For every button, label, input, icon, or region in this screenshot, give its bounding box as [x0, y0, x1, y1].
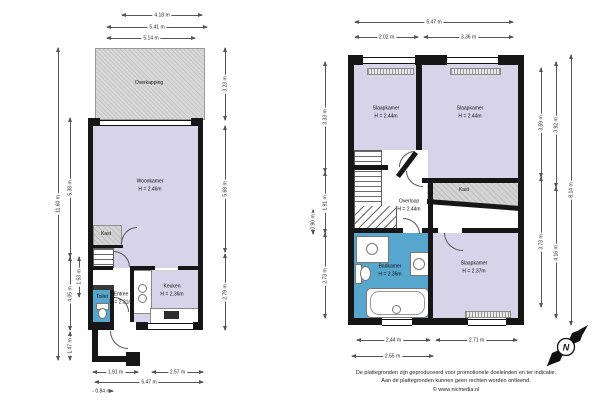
wall — [416, 62, 422, 150]
wall — [428, 233, 433, 318]
disclaimer-line-2: Aan de plattegronden kunnen geen rechten… — [320, 377, 592, 385]
dimension: 3.36 m — [424, 37, 513, 38]
dimension: 2.55 m — [352, 356, 433, 357]
room-label-badkamer: Badkamer H = 2.36m — [378, 263, 401, 279]
room-label-slaapkamer1: Slaapkamer H = 2.44m — [373, 105, 400, 121]
dimension: 3.59 m — [541, 68, 542, 177]
dimension-label: 4.16 m — [555, 243, 560, 262]
room-name: Slaapkamer — [373, 105, 400, 113]
wall — [422, 178, 518, 183]
wall — [354, 228, 403, 233]
room-name: Kast — [459, 187, 469, 195]
stairs-upper-winder — [354, 206, 397, 229]
shower-drain-icon — [366, 243, 378, 255]
radiator-icon — [465, 311, 511, 318]
dimension-label: 0.90 m — [312, 212, 317, 231]
dimension-label: 3.36 m — [459, 36, 478, 41]
room-name: Badkamer — [378, 263, 401, 271]
room-height: H = 2.44m — [397, 206, 420, 214]
room-name: Slaapkamer — [461, 260, 488, 268]
window — [363, 57, 415, 64]
room-height: H = 2.36m — [378, 271, 401, 279]
wall — [428, 183, 433, 233]
room-label-kast: Kast — [459, 187, 469, 195]
dimension-label: 2.71 m — [467, 339, 486, 344]
dimension-label: 3.73 m — [540, 232, 545, 251]
compass-n-label: N — [563, 343, 570, 353]
window — [447, 57, 498, 64]
dimension: 3.73 m — [541, 177, 542, 307]
wall — [422, 228, 433, 233]
floorplan-page: Overkapping Woonkamer H = 2.46m Kast Keu… — [0, 0, 600, 400]
dimension: 3.33 m — [325, 62, 326, 172]
dimension-label: 8.14 m — [570, 180, 575, 199]
wall — [412, 318, 468, 325]
dimension: 2.73 m — [325, 233, 326, 318]
dimension-label: 5.47 m — [424, 21, 443, 26]
dimension-label: 2.44 m — [384, 339, 403, 344]
room-label-slaapkamer3: Slaapkamer H = 2.37m — [461, 260, 488, 276]
stairs-upper — [354, 150, 382, 208]
wall — [348, 318, 382, 325]
bathtub-drain-icon — [392, 305, 401, 314]
wall — [518, 55, 524, 325]
wall — [433, 228, 438, 233]
dimension-label: 3.59 m — [540, 113, 545, 132]
dimension: 5.47 m — [355, 22, 513, 23]
room-name: Slaapkamer — [457, 105, 484, 113]
washbasin-bowl-icon — [413, 258, 425, 270]
disclaimer-line-1: De plattegronden zijn geproduceerd voor … — [320, 369, 592, 377]
dimension: 8.14 m — [571, 55, 572, 325]
dimension-label: 1.91 m — [324, 193, 329, 212]
wall — [348, 55, 354, 325]
room-height: H = 2.44m — [457, 113, 484, 121]
dimension: 3.92 m — [556, 62, 557, 187]
dimension: 2.44 m — [357, 340, 430, 341]
window — [468, 319, 506, 326]
radiator-icon — [367, 68, 414, 75]
dimension-label: 3.33 m — [324, 107, 329, 126]
dimension-label: 2.02 m — [377, 36, 396, 41]
upper-floor-plan: Slaapkamer H = 2.44m Slaapkamer H = 2.44… — [0, 0, 600, 400]
dimension: 0.90 m — [313, 210, 314, 234]
wall — [462, 228, 518, 233]
dimension-label: 3.92 m — [555, 115, 560, 134]
room-label-slaapkamer2: Slaapkamer H = 2.44m — [457, 105, 484, 121]
toilet-bowl-icon — [360, 266, 371, 281]
dimension-label: 2.55 m — [383, 355, 402, 360]
dimension-label: 2.73 m — [324, 266, 329, 285]
copyright-line: © www.nicmedia.nl — [320, 386, 592, 394]
dimension: 2.02 m — [355, 37, 418, 38]
room-name: Overloop — [397, 198, 420, 206]
window — [382, 319, 412, 326]
wall — [354, 165, 388, 170]
disclaimer-text: De plattegronden zijn geproduceerd voor … — [320, 369, 592, 394]
dimension: 2.71 m — [436, 340, 517, 341]
wall — [506, 318, 524, 325]
radiator-icon — [450, 68, 501, 75]
room-label-overloop: Overloop H = 2.44m — [397, 198, 420, 214]
dimension: 4.16 m — [556, 187, 557, 318]
room-height: H = 2.37m — [461, 268, 488, 276]
dimension: 1.91 m — [325, 172, 326, 233]
room-height: H = 2.44m — [373, 113, 400, 121]
compass-north-icon: N — [543, 324, 589, 370]
